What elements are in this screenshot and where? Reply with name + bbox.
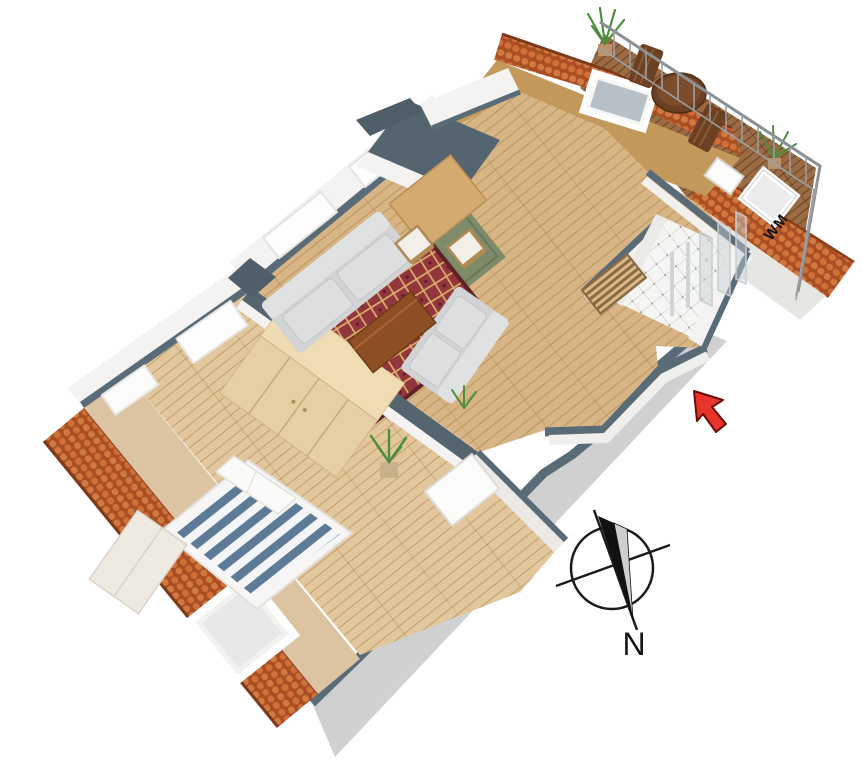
balcony-table <box>652 73 706 113</box>
floorplan-3d-rendering: WM <box>0 0 863 768</box>
compass-north-label: N <box>622 626 645 662</box>
floorplan-canvas: WM <box>0 0 863 768</box>
